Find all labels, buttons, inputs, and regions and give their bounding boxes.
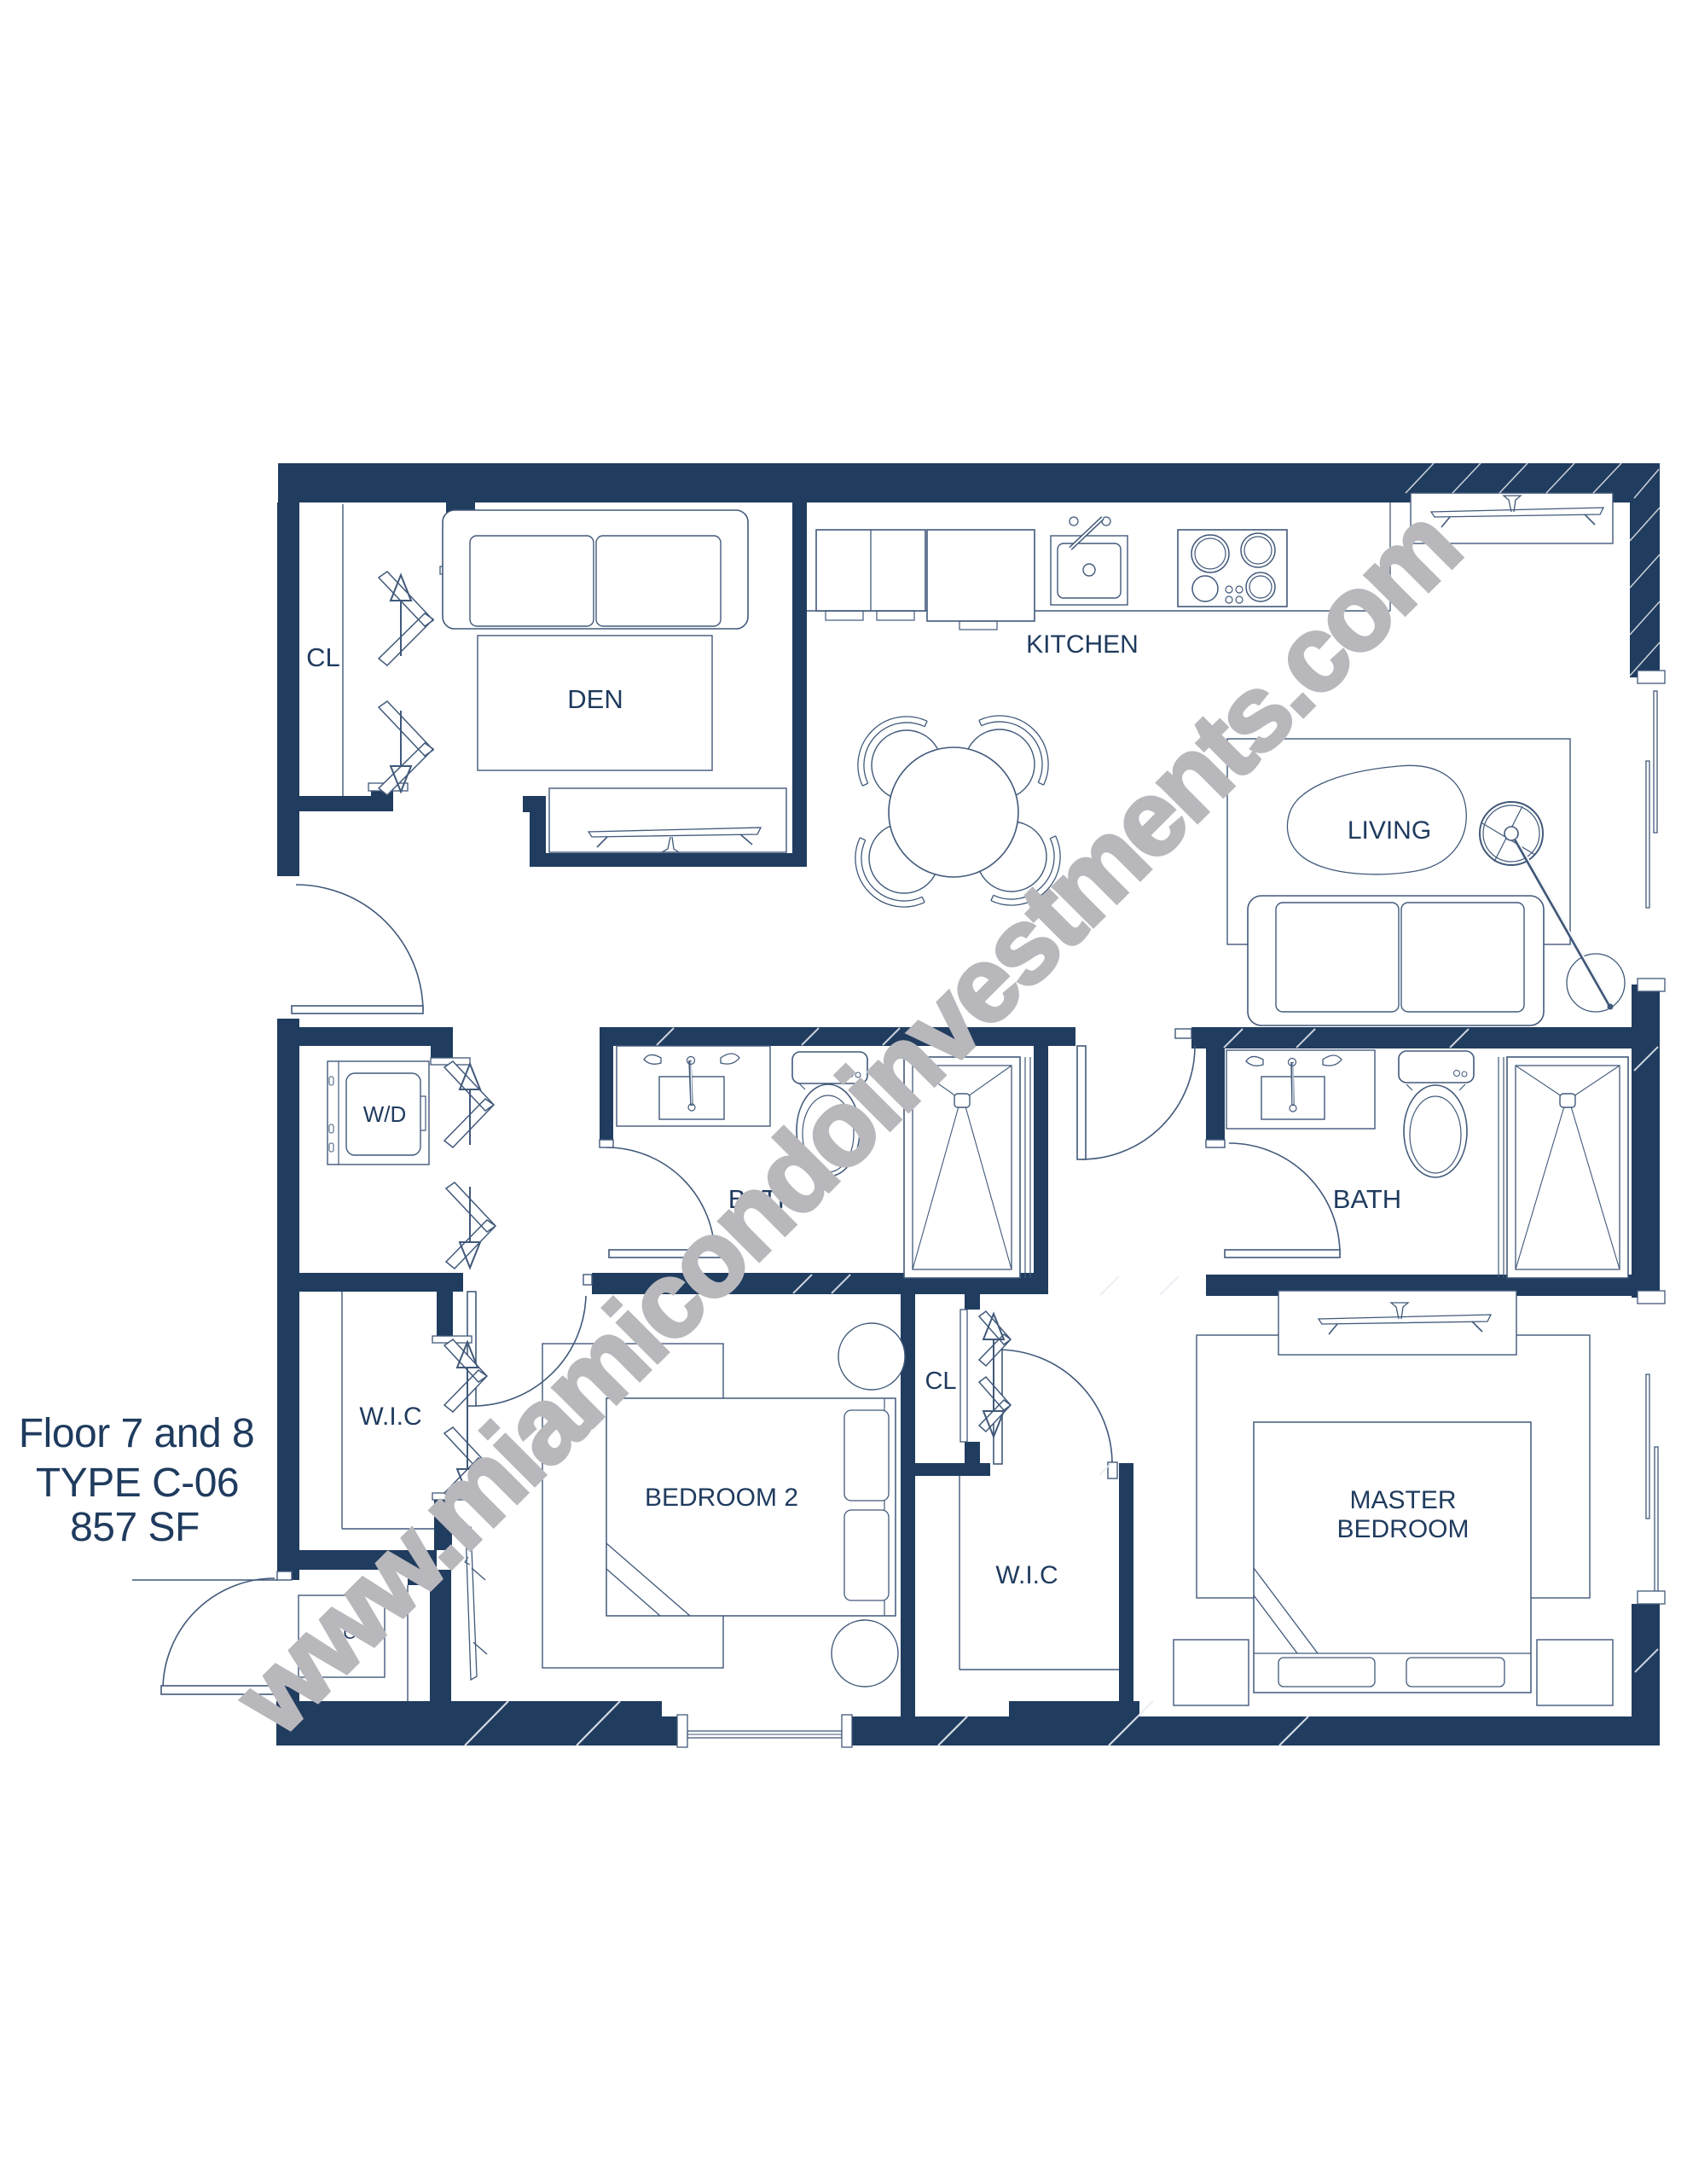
svg-text:W.I.C: W.I.C bbox=[359, 1403, 421, 1431]
svg-text:857 SF: 857 SF bbox=[70, 1505, 200, 1550]
svg-text:CL: CL bbox=[306, 642, 340, 672]
svg-text:BEDROOM: BEDROOM bbox=[1336, 1515, 1469, 1543]
svg-text:BATH: BATH bbox=[1333, 1184, 1401, 1214]
svg-text:TYPE C-06: TYPE C-06 bbox=[36, 1461, 239, 1506]
svg-text:KITCHEN: KITCHEN bbox=[1026, 630, 1139, 659]
svg-text:BEDROOM 2: BEDROOM 2 bbox=[645, 1484, 798, 1512]
svg-text:DEN: DEN bbox=[567, 684, 623, 714]
svg-text:CL: CL bbox=[925, 1368, 956, 1395]
svg-text:W.I.C: W.I.C bbox=[995, 1561, 1058, 1589]
svg-text:MASTER: MASTER bbox=[1349, 1486, 1456, 1514]
svg-text:LIVING: LIVING bbox=[1348, 816, 1431, 845]
svg-text:W/D: W/D bbox=[363, 1101, 407, 1127]
svg-text:Floor 7 and 8: Floor 7 and 8 bbox=[19, 1411, 254, 1456]
